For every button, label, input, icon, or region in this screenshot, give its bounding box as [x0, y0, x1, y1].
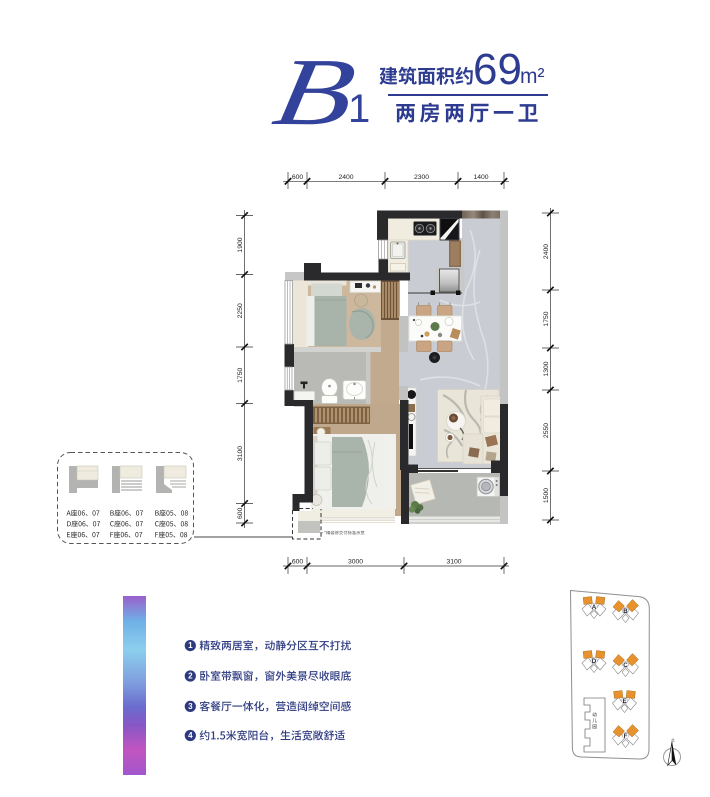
svg-text:4: 4: [188, 731, 193, 740]
svg-text:3: 3: [188, 702, 193, 711]
svg-text:2: 2: [188, 672, 193, 681]
svg-text:1: 1: [188, 641, 193, 650]
